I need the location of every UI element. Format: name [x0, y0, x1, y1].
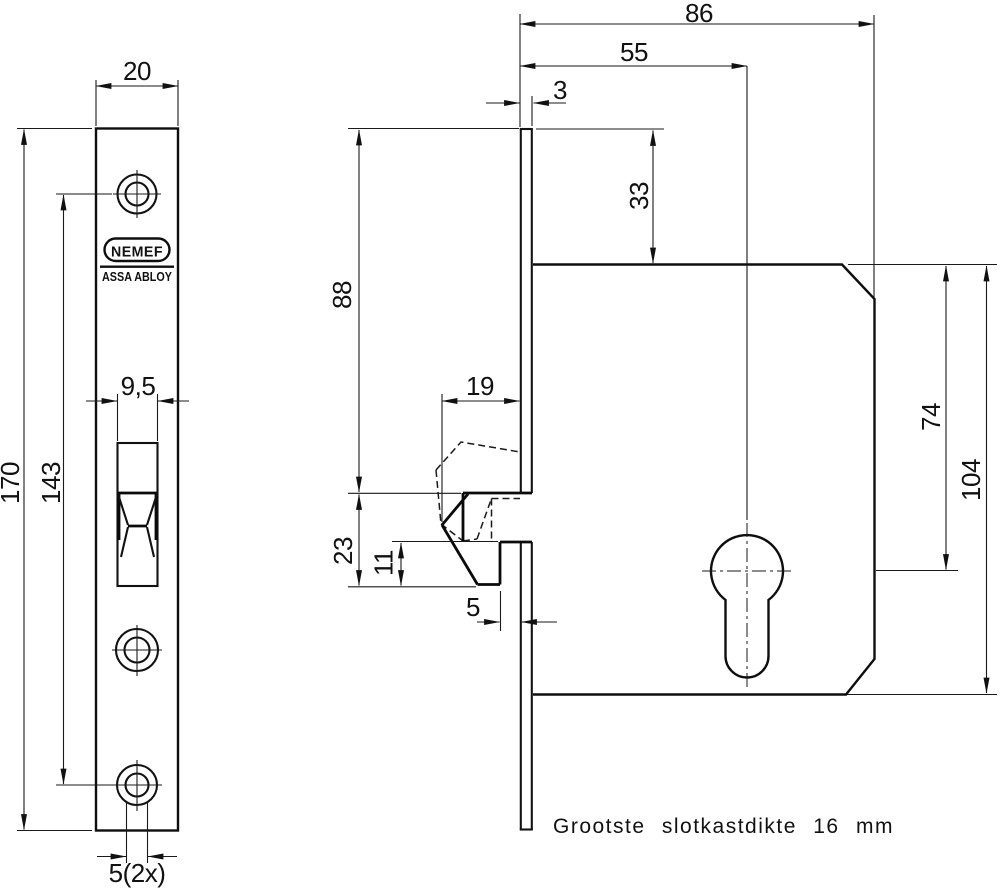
bolt-cutout [118, 443, 158, 586]
dim-11: 11 [369, 550, 399, 576]
dim-74: 74 [916, 403, 946, 431]
hook-retracted-edge [436, 470, 441, 524]
assa-abloy-text: ASSA ABLOY [102, 270, 173, 284]
lock-case-outline [533, 265, 875, 695]
dim-143: 143 [36, 462, 66, 504]
note-text: Grootste slotkastdikte 16 mm [553, 815, 894, 838]
dim-9-5: 9,5 [121, 371, 156, 401]
faceplate-outline [96, 129, 178, 831]
dim-5: 5 [466, 592, 480, 622]
lock-drawing-canvas: NEMEF ASSA ABLOY 20 170 [0, 0, 1000, 888]
front-view-dimensions: 20 170 143 9,5 5(2x) [0, 56, 189, 888]
technical-drawing-page: { "drawing": { "note": "Grootste slotkas… [0, 0, 1000, 888]
side-view-lock [436, 66, 875, 830]
logo-divider [100, 266, 174, 268]
hook-bolt-mask [442, 493, 532, 585]
side-view-dimensions: 86 55 3 33 88 23 11 19 5 [327, 0, 997, 695]
dim-55: 55 [620, 37, 648, 67]
front-view-faceplate: NEMEF ASSA ABLOY [96, 129, 178, 831]
dim-19: 19 [466, 371, 494, 401]
dim-170: 170 [0, 462, 25, 504]
hook-retracted-top [436, 442, 520, 470]
dim-23: 23 [328, 537, 358, 565]
dim-88: 88 [327, 281, 357, 309]
bolt-front-diag-3 [121, 527, 128, 557]
dim-5-2x: 5(2x) [109, 858, 166, 888]
dim-86: 86 [685, 0, 713, 28]
dim-104: 104 [956, 459, 986, 501]
dim-3: 3 [553, 75, 567, 105]
dim-20: 20 [123, 56, 151, 86]
dim-33: 33 [624, 182, 654, 210]
nemef-logo-text: NEMEF [111, 244, 163, 261]
bolt-front-diag-4 [147, 527, 154, 557]
